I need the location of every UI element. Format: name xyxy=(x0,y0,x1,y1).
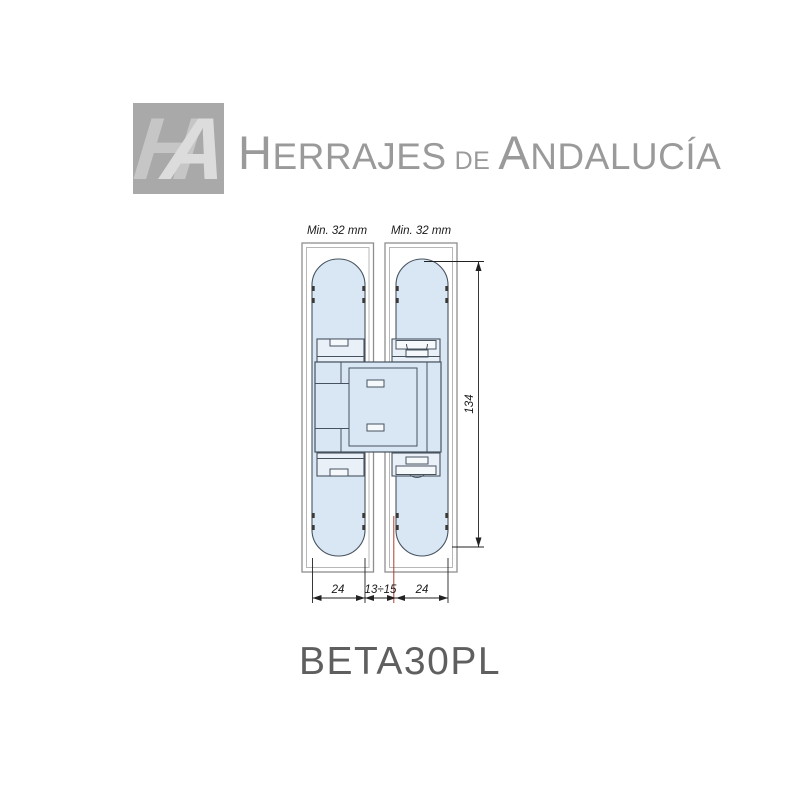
lower-right-block xyxy=(392,453,440,478)
product-name: BETA30PL xyxy=(0,642,800,681)
hinge-technical-drawing: Min. 32 mm Min. 32 mm 134 24 13÷15 24 xyxy=(283,213,498,615)
dim-gap-label: 13÷15 xyxy=(365,584,397,596)
dim-width-right-label: 24 xyxy=(415,584,429,596)
upper-right-block xyxy=(392,339,440,362)
brand-wordmark: H ERRAJES DE A NDALUCÍA xyxy=(238,129,721,179)
wordmark-word2-rest: NDALUCÍA xyxy=(530,138,721,175)
dim-height-label: 134 xyxy=(464,394,476,413)
dim-min-width-right: Min. 32 mm xyxy=(391,225,451,237)
central-hinge-body xyxy=(315,362,441,452)
wordmark-word1-initial: H xyxy=(238,129,272,176)
wordmark-word1-rest: ERRAJES xyxy=(272,138,446,175)
wordmark-word2-initial: A xyxy=(498,129,530,176)
logo-letter-a: A xyxy=(158,105,224,193)
brand-logo-mark: H A xyxy=(133,103,224,194)
dim-min-width-left: Min. 32 mm xyxy=(307,225,367,237)
dim-width-left-label: 24 xyxy=(331,584,345,596)
upper-left-block xyxy=(317,339,364,362)
wordmark-connector: DE xyxy=(455,149,491,174)
lower-left-block xyxy=(317,453,364,476)
